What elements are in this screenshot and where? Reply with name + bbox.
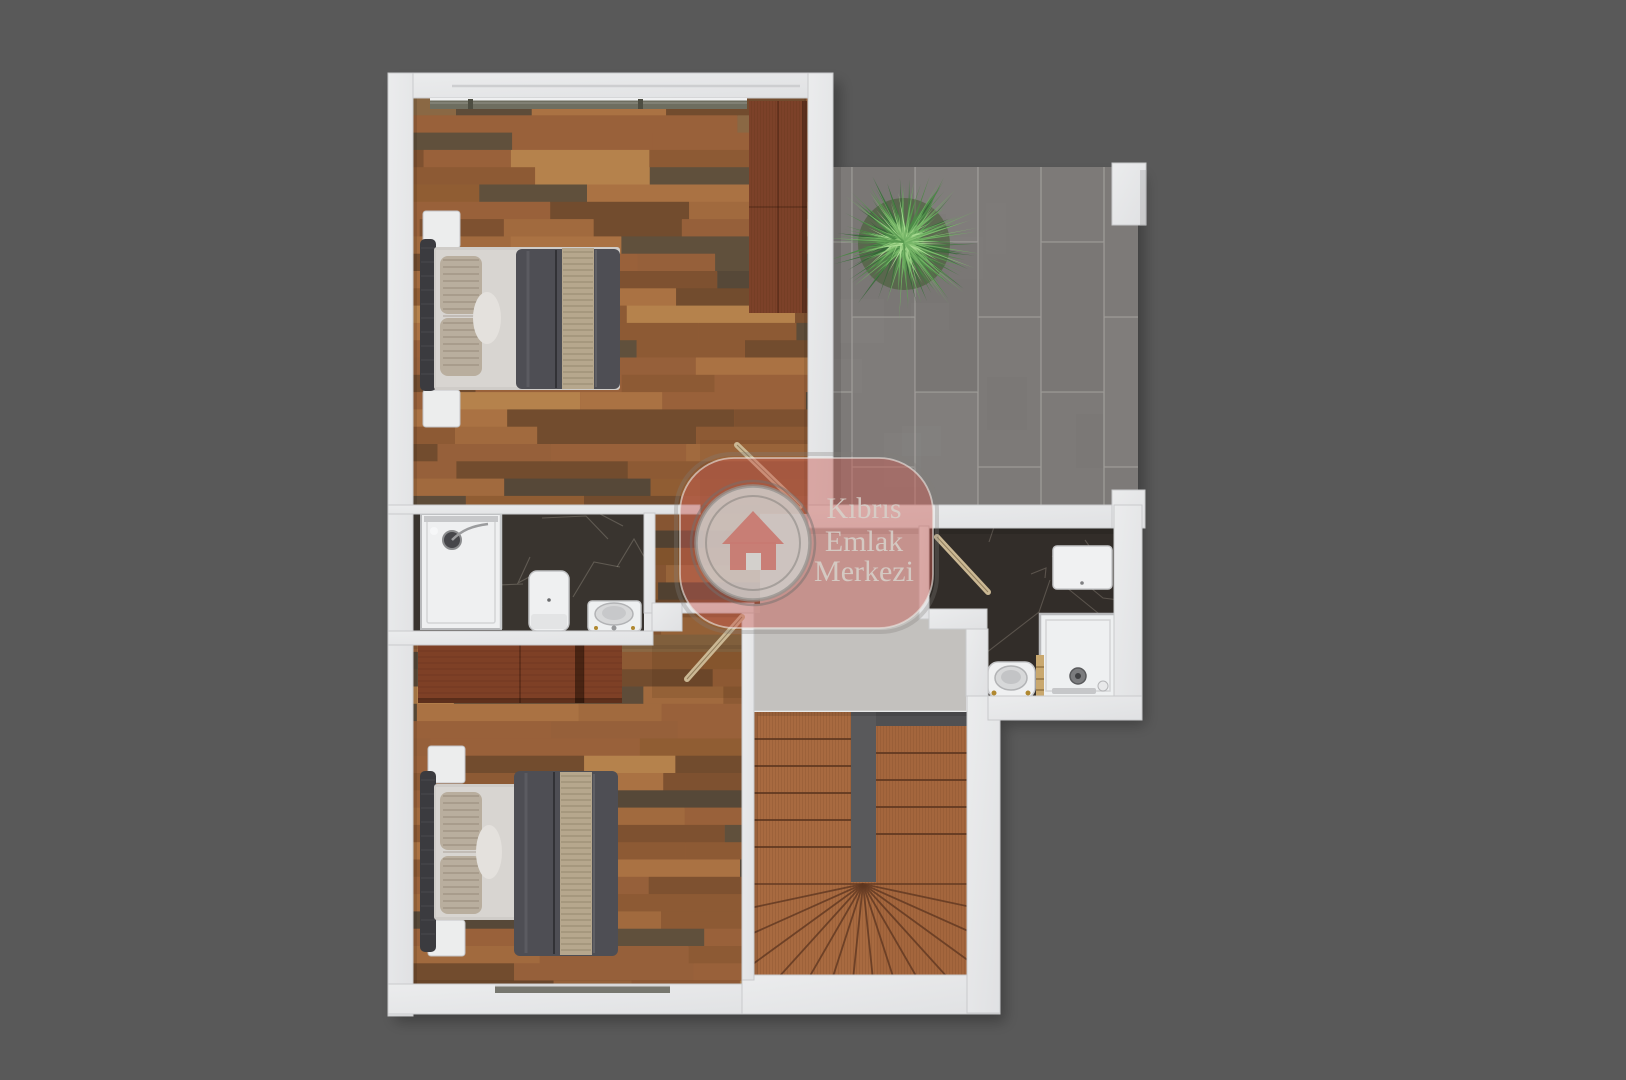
- svg-text:Kıbrıs: Kıbrıs: [827, 492, 902, 525]
- svg-text:Merkezi: Merkezi: [814, 555, 914, 588]
- svg-text:Emlak: Emlak: [825, 525, 903, 558]
